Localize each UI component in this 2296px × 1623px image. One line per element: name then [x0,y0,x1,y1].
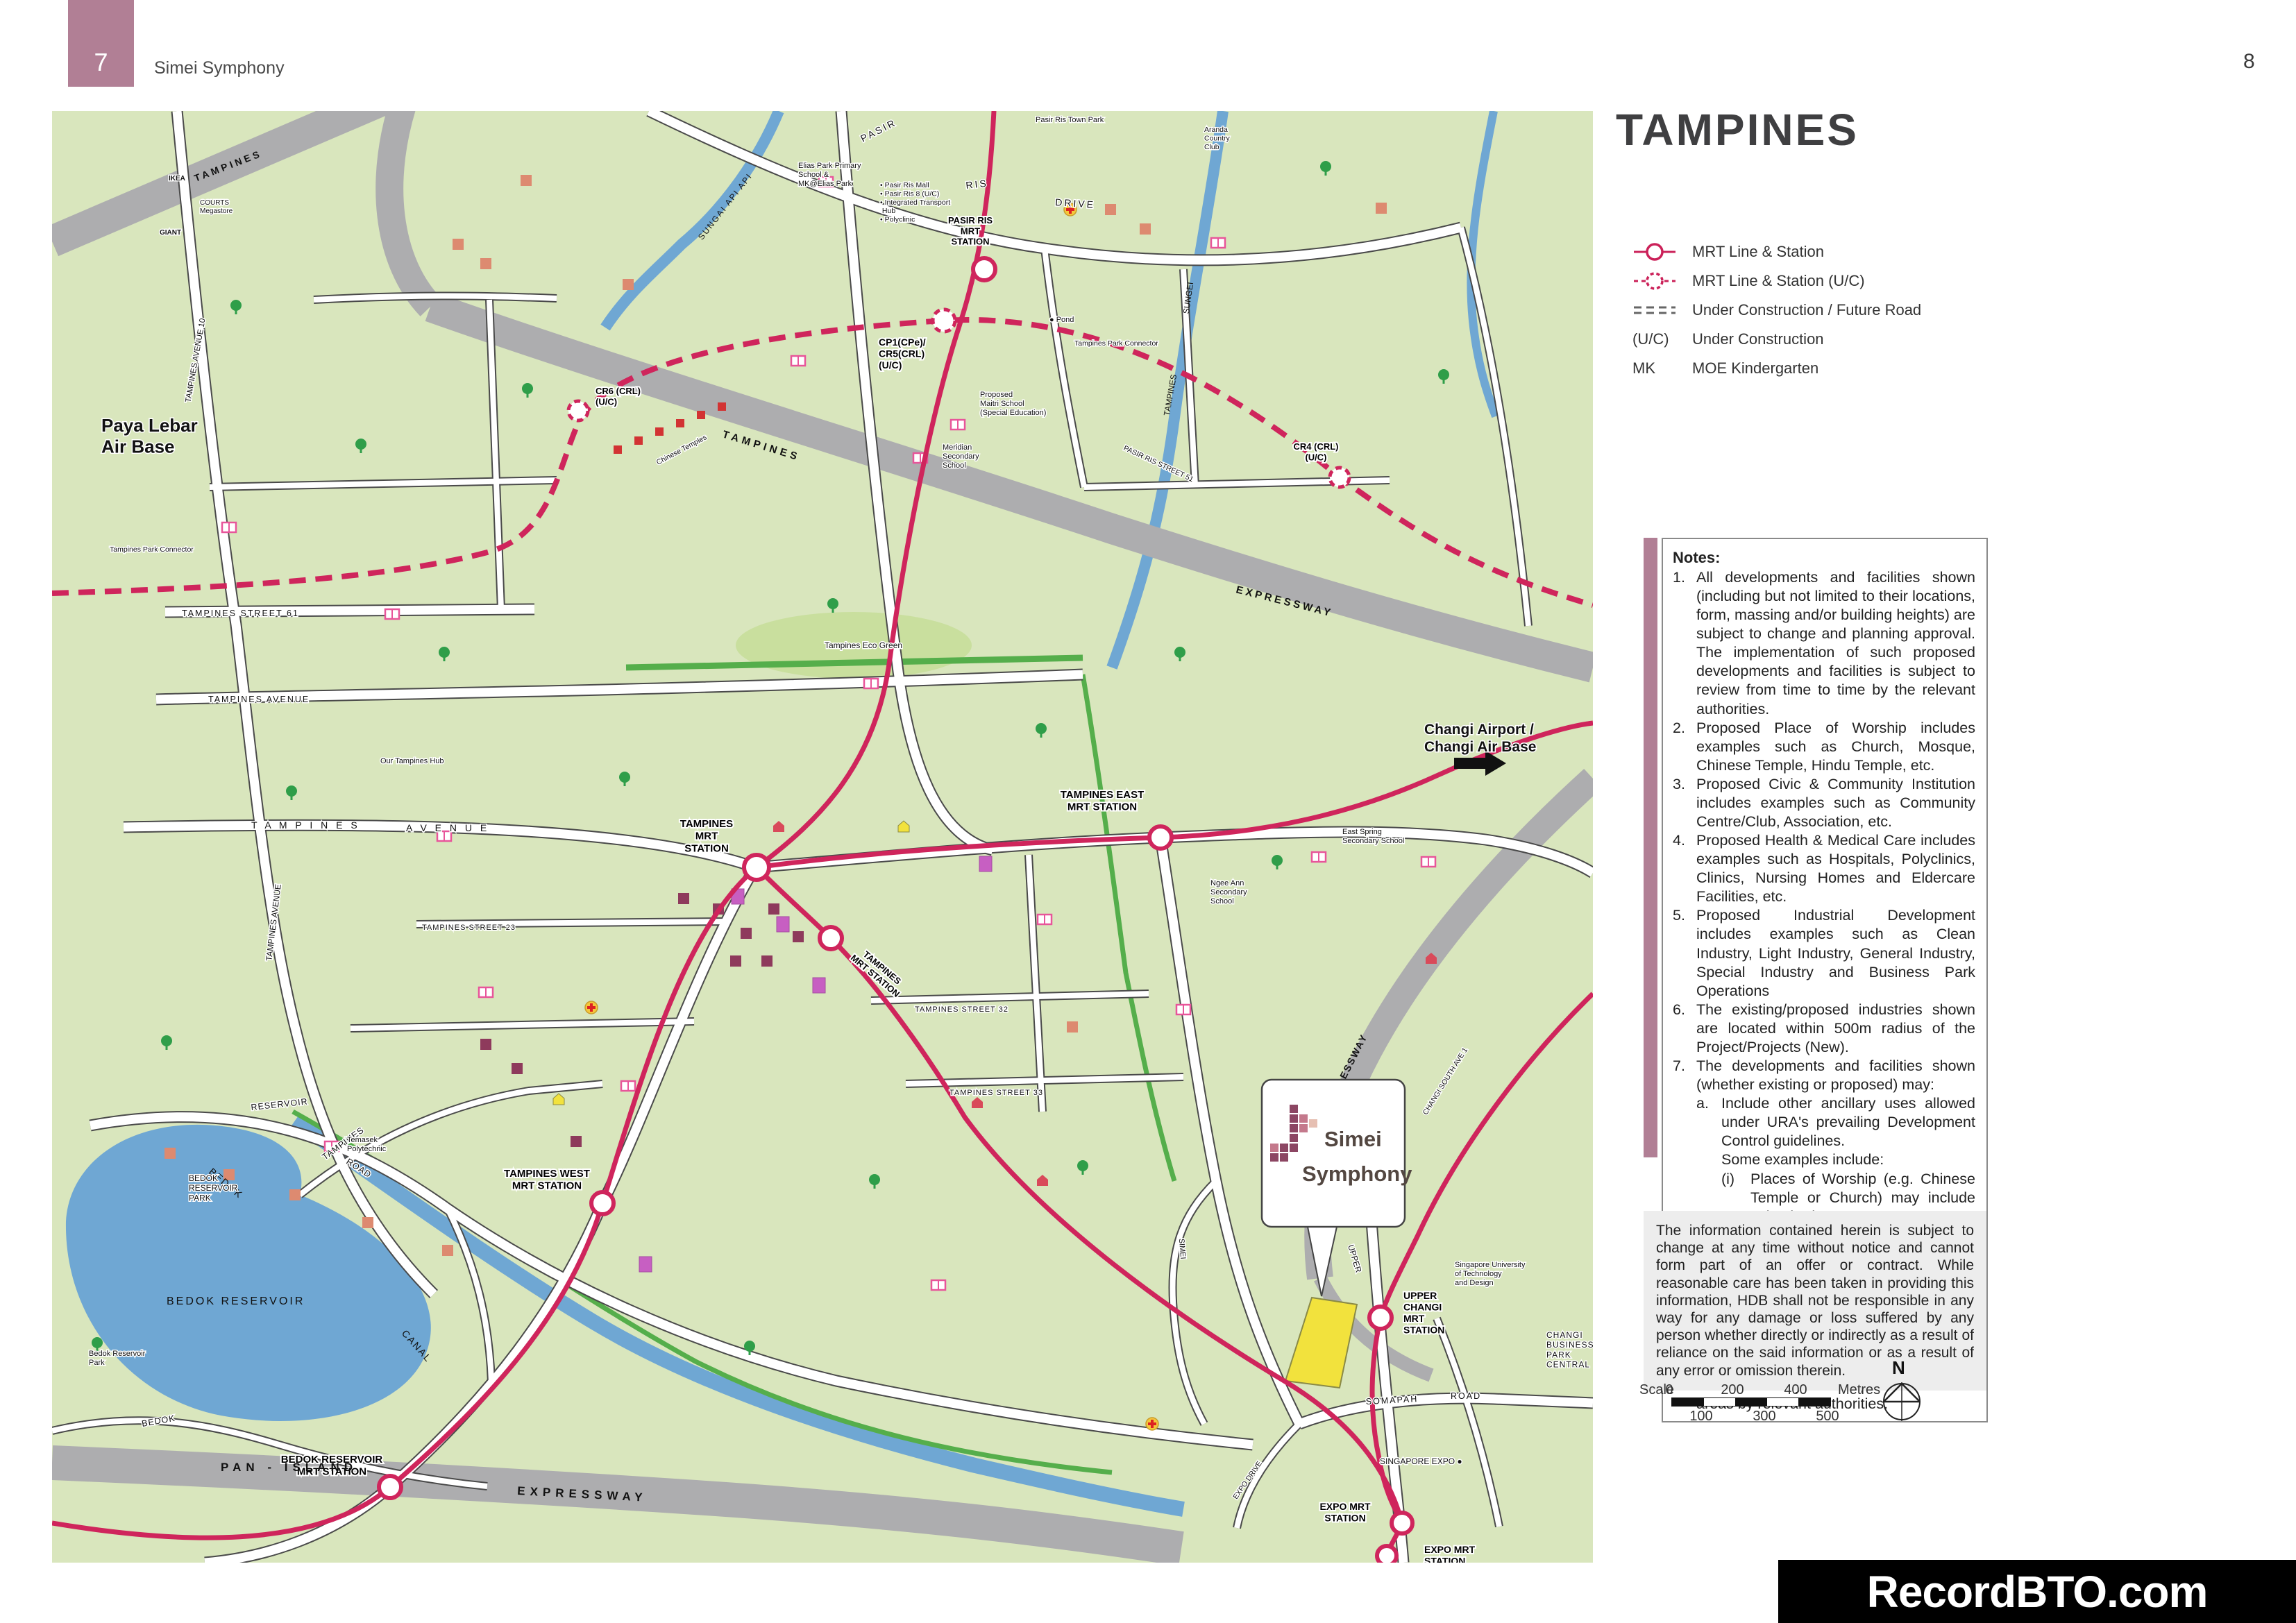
map-label: Our Tampines Hub [380,757,444,765]
b1-marker-icon [480,1039,491,1050]
b1-marker-icon [571,1136,582,1147]
b2-marker-icon [453,239,464,250]
map-label: T A M P I N E S [251,819,360,831]
page-title: Simei Symphony [154,58,285,78]
school-marker-icon [931,1280,945,1290]
note-item: 2.Proposed Place of Worship includes exa… [1673,719,1975,775]
disclaimer-text: The information contained herein is subj… [1644,1211,1986,1391]
mall-marker-icon [639,1257,652,1272]
mall-marker-icon [813,978,825,993]
legend-row-mrt-uc: MRT Line & Station (U/C) [1632,266,2021,296]
map-label: Changi Airport /Changi Air Base [1424,722,1536,755]
b2-marker-icon [362,1217,373,1228]
map-label: Tampines Park Connector [110,545,194,554]
mrt-station-uc-icon [1632,271,1692,291]
map-svg: PASIR RISMRTSTATIONTAMPINESMRTSTATIONTAM… [52,111,1593,1563]
map-label: TAMPINES AVENUE [208,695,310,704]
map-label: TAMPINES STREET 32 [915,1005,1008,1014]
clinic-marker-icon [1146,1418,1158,1430]
legend-row-mk: MK MOE Kindergarten [1632,354,2021,383]
notes-accent-bar [1644,538,1657,1157]
mall-marker-icon [777,917,789,932]
map-area: PASIR RISMRTSTATIONTAMPINESMRTSTATIONTAM… [52,111,1593,1563]
page-number-right: 8 [2243,50,2255,74]
b2-marker-icon [1376,203,1387,214]
b1-marker-icon [793,931,804,942]
note-item: 1.All developments and facilities shown … [1673,568,1975,719]
school-marker-icon [791,356,805,366]
b2-marker-icon [1067,1021,1078,1033]
temple-marker-icon [634,436,643,445]
school-marker-icon [1312,852,1326,862]
mrt-station-label: TAMPINES WESTMRT STATION [504,1168,590,1192]
mall-marker-icon [979,856,992,872]
map-label: TAMPINES STREET 61 [182,609,299,618]
scale-tick: 300 [1753,1409,1775,1425]
notes-heading: Notes: [1673,549,1975,567]
mrt-station-label: TAMPINES EASTMRT STATION [1061,789,1145,813]
mrt-station: EXPO MRTSTATION [1377,1544,1476,1563]
b2-marker-icon [164,1148,176,1159]
watermark-text: RecordBTO.com [1867,1566,2208,1617]
uc-abbrev: (U/C) [1632,330,1669,348]
b2-marker-icon [1140,223,1151,235]
note-item: 6.The existing/proposed industries shown… [1673,1001,1975,1057]
mrt-station-icon [1632,241,1692,262]
school-marker-icon [1176,1005,1190,1014]
school-marker-icon [951,420,965,430]
scale-tick: 400 [1784,1382,1807,1398]
map-label: Tampines Eco Green [825,640,902,650]
map-label: TAMPINES STREET 33 [949,1089,1043,1097]
legend-row-uc: (U/C) Under Construction [1632,325,2021,354]
future-road-icon [1632,300,1692,321]
district-title: TAMPINES [1616,104,1859,155]
school-marker-icon [385,609,399,619]
clinic-marker-icon [585,1001,598,1014]
map-label: ROAD [1451,1391,1481,1401]
school-marker-icon [1421,857,1435,867]
school-marker-icon [1211,238,1225,248]
temple-marker-icon [718,402,726,411]
b2-marker-icon [480,258,491,269]
scale-tick: 100 [1689,1409,1712,1425]
map-label: SINGAPORE EXPO ● [1380,1456,1462,1466]
note-item: 4.Proposed Health & Medical Care include… [1673,831,1975,906]
project-callout-name-line1: Simei [1324,1127,1382,1151]
brochure-page: 7 Simei Symphony 8 [0,0,2296,1623]
temple-marker-icon [614,445,622,454]
page-number-left: 7 [68,48,134,77]
scale-tick: 0 [1665,1382,1673,1398]
b1-marker-icon [512,1063,523,1074]
b2-marker-icon [1105,204,1116,215]
b1-marker-icon [761,955,773,967]
map-label: IKEA [169,175,185,182]
map-label: PAN - ISLAND [221,1461,357,1474]
map-label: Pasir Ris Town Park [1036,116,1104,124]
map-label: TAMPINES STREET 23 [422,924,516,932]
project-callout-name-line2: Symphony [1302,1162,1412,1186]
mrt-station-label: EXPO MRTSTATION [1319,1501,1371,1524]
map-legend: MRT Line & Station MRT Line & Station (U… [1632,237,2021,383]
school-marker-icon [1038,915,1052,924]
b2-marker-icon [623,279,634,290]
scale-tick: 500 [1816,1409,1839,1425]
scale-tick: 200 [1721,1382,1744,1398]
note-item: 5.Proposed Industrial Development includ… [1673,906,1975,1000]
watermark-banner: RecordBTO.com [1778,1560,2296,1623]
compass-north-label: N [1892,1357,1905,1379]
page-number-tab: 7 [68,0,134,87]
map-label: GIANT [160,229,181,237]
map-label: COURTSMegastore [200,199,233,215]
b1-marker-icon [730,955,741,967]
map-label: BEDOK RESERVOIR [167,1295,305,1307]
b2-marker-icon [289,1189,301,1200]
school-marker-icon [864,679,878,688]
temple-marker-icon [676,419,684,427]
temple-marker-icon [697,411,705,419]
map-label: Tampines Park Connector [1074,339,1158,348]
note-item: 7.The developments and facilities shown … [1673,1057,1975,1094]
b2-marker-icon [442,1245,453,1256]
b1-marker-icon [678,893,689,904]
mk-abbrev: MK [1632,359,1655,377]
school-marker-icon [222,522,236,532]
school-marker-icon [621,1081,635,1091]
school-marker-icon [479,987,493,997]
b2-marker-icon [521,175,532,186]
b1-marker-icon [741,928,752,939]
compass: N [1874,1361,1930,1434]
legend-row-future-road: Under Construction / Future Road [1632,296,2021,325]
map-label: RIS [965,178,989,191]
map-label: ● Pond [1049,316,1074,324]
note-item: 3.Proposed Civic & Community Institution… [1673,775,1975,831]
legend-row-mrt: MRT Line & Station [1632,237,2021,266]
scale-bar [1671,1397,1831,1407]
map-label: A V E N U E [406,822,489,833]
note-subitem-a: a.Include other ancillary uses allowed u… [1696,1094,1975,1150]
temple-marker-icon [655,427,664,436]
b1-marker-icon [768,903,779,915]
note-examples-label: Some examples include: [1721,1150,1975,1169]
